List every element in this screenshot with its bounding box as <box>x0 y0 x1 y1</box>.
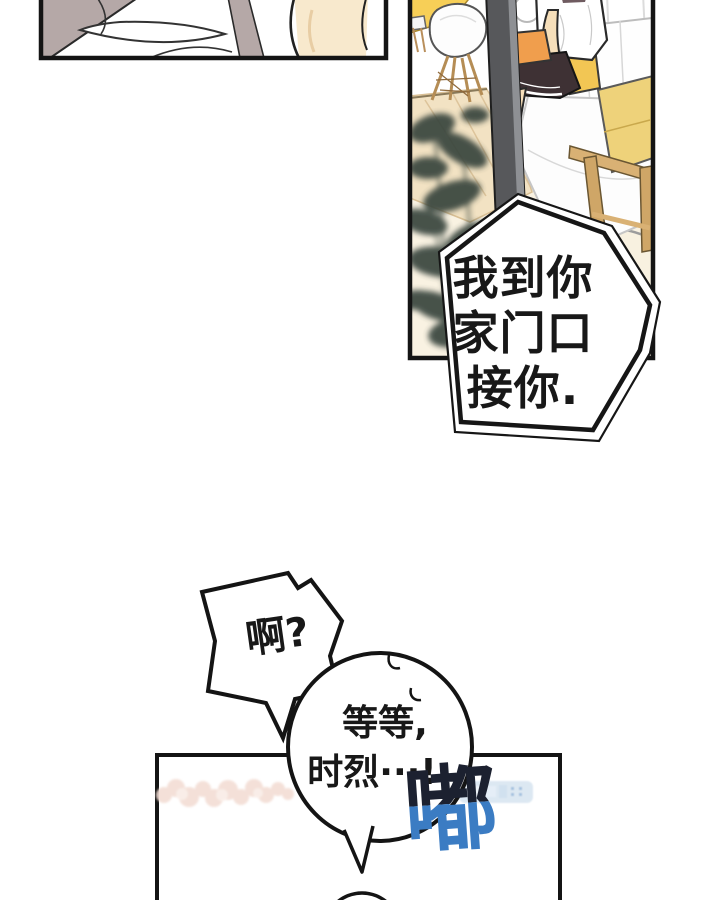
wait-line-1: 等等, <box>286 699 458 748</box>
arm <box>294 0 368 58</box>
side-chair <box>410 16 426 30</box>
sfx-beep: 嘟 嘟 <box>395 756 506 867</box>
pickup-line-2: 家门口 <box>448 306 598 361</box>
pickup-line-1: 我到你 <box>448 251 598 306</box>
comic-page: 我到你 家门口 接你. 啊? 等等, 时烈···! 嘟 嘟 <box>0 0 720 900</box>
pickup-line-3: 接你. <box>448 361 598 416</box>
panel-closeup <box>41 0 386 58</box>
pickup-bubble-text: 我到你 家门口 接你. <box>448 251 598 416</box>
